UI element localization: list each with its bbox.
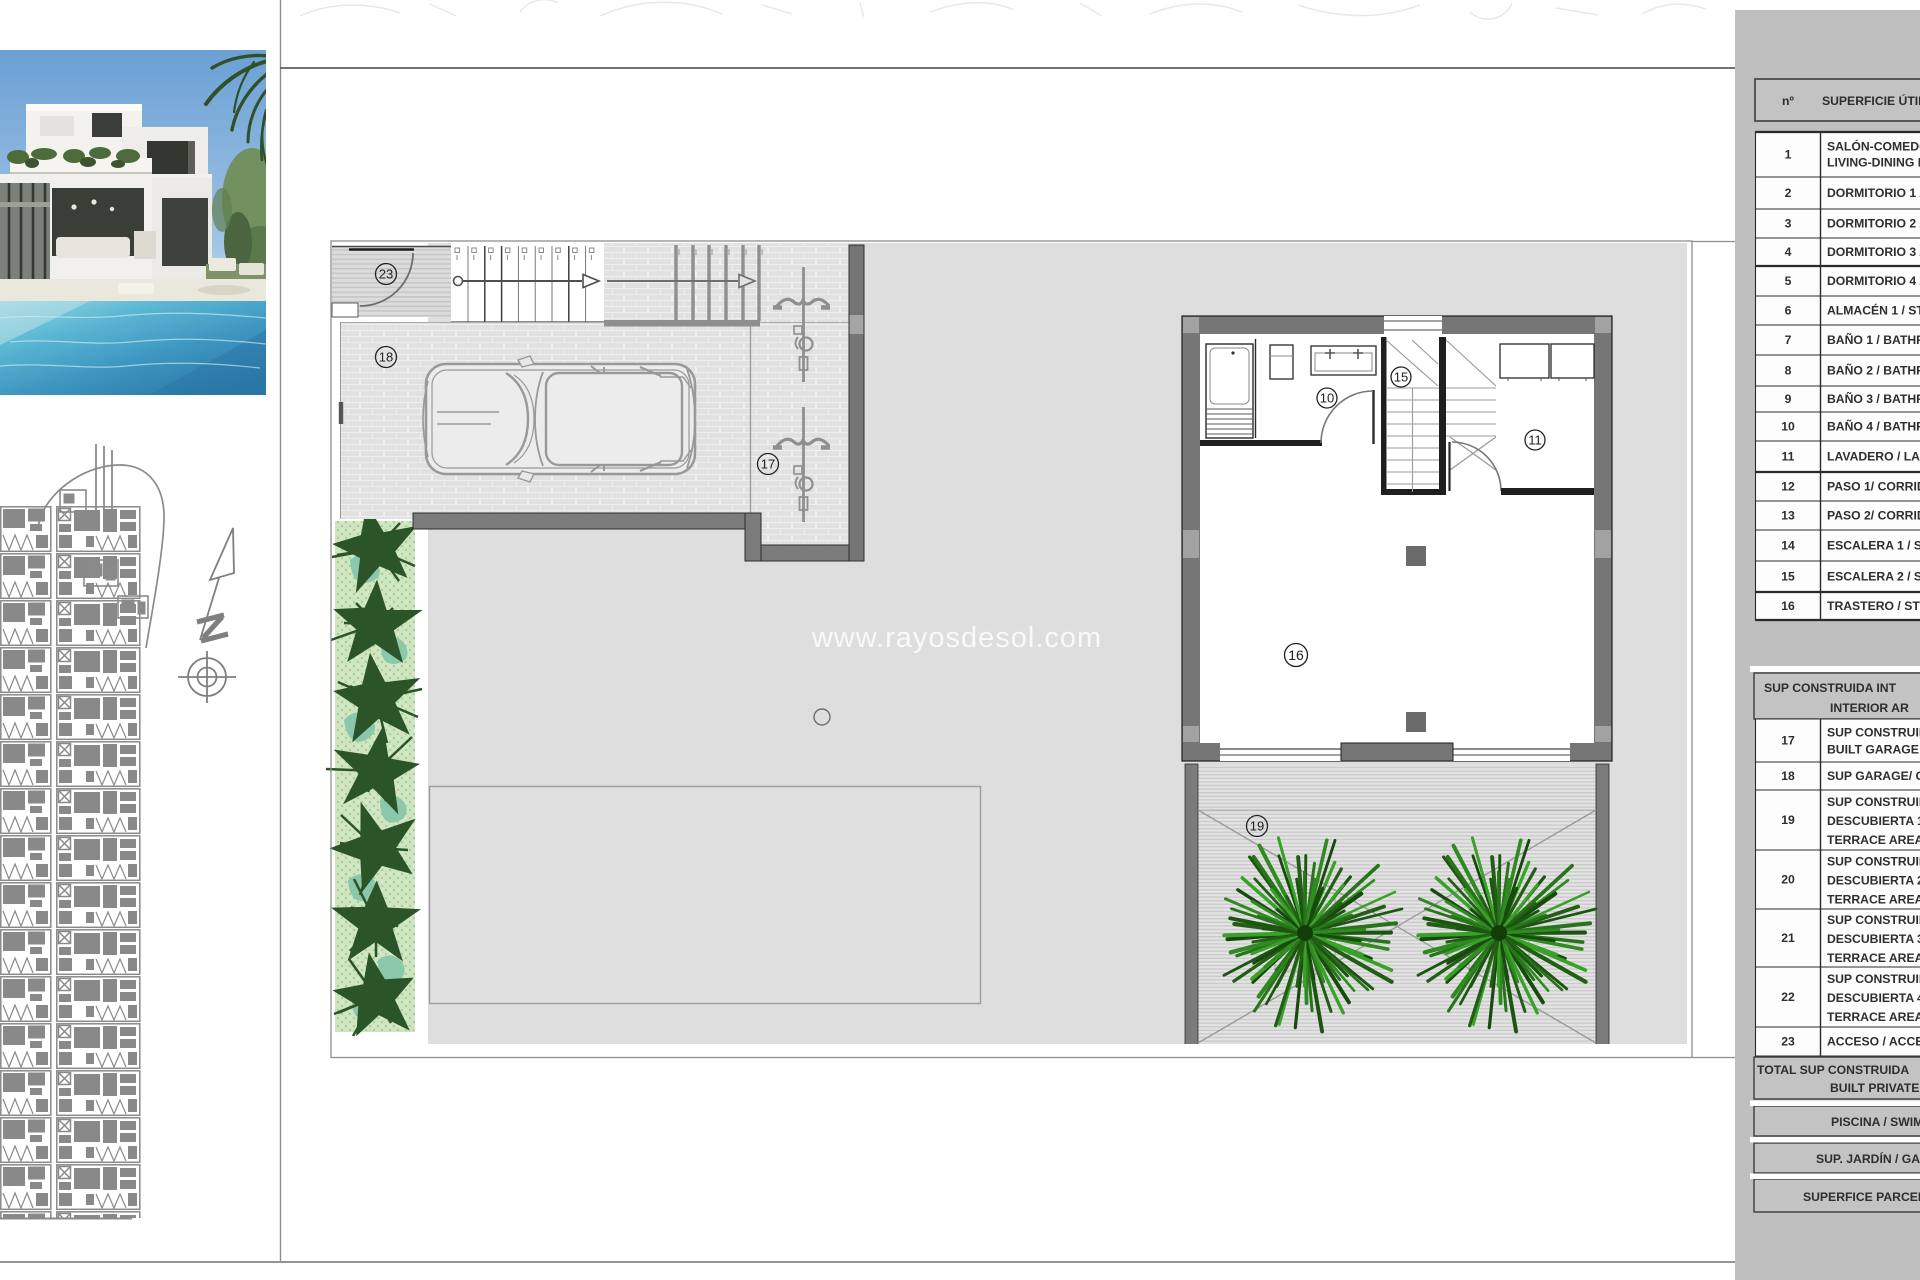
svg-text:9: 9 xyxy=(1785,392,1792,406)
svg-text:11: 11 xyxy=(1782,450,1795,464)
svg-text:5: 5 xyxy=(1785,274,1792,288)
svg-text:TERRACE AREA 1: TERRACE AREA 1 xyxy=(1827,833,1920,847)
svg-text:ESCALERA 1 / STAIR: ESCALERA 1 / STAIR xyxy=(1827,539,1920,553)
svg-text:TERRACE AREA 3: TERRACE AREA 3 xyxy=(1827,951,1920,965)
svg-text:www.rayosdesol.com: www.rayosdesol.com xyxy=(811,622,1102,654)
svg-text:15: 15 xyxy=(1394,370,1408,385)
svg-text:15: 15 xyxy=(1781,570,1795,584)
svg-text:SUP CONSTRUIDA: SUP CONSTRUIDA xyxy=(1827,726,1920,740)
svg-text:3: 3 xyxy=(1785,217,1792,231)
svg-text:TERRACE AREA 4: TERRACE AREA 4 xyxy=(1827,1010,1920,1024)
svg-text:SUPERFICE PARCELA: SUPERFICE PARCELA xyxy=(1803,1190,1920,1204)
svg-text:2: 2 xyxy=(1785,186,1792,200)
svg-text:ESCALERA 2 / STAIR: ESCALERA 2 / STAIR xyxy=(1827,570,1920,584)
svg-text:LIVING-DINING RO: LIVING-DINING RO xyxy=(1827,156,1920,170)
svg-text:SUP CONSTRUIDA: SUP CONSTRUIDA xyxy=(1827,913,1920,927)
svg-text:14: 14 xyxy=(1781,539,1795,553)
svg-text:16: 16 xyxy=(1288,647,1304,663)
svg-text:BAÑO 2 / BATHROO: BAÑO 2 / BATHROO xyxy=(1827,363,1920,378)
svg-text:SALÓN-COMEDOR /: SALÓN-COMEDOR / xyxy=(1827,139,1920,154)
svg-text:6: 6 xyxy=(1785,304,1792,318)
svg-text:BAÑO 3 / BATHROO: BAÑO 3 / BATHROO xyxy=(1827,391,1920,406)
svg-text:BAÑO 4 / BATHROO: BAÑO 4 / BATHROO xyxy=(1827,419,1920,434)
svg-text:19: 19 xyxy=(1250,819,1264,834)
svg-text:18: 18 xyxy=(1781,769,1795,783)
svg-text:23: 23 xyxy=(379,267,393,282)
svg-text:4: 4 xyxy=(1785,245,1792,259)
svg-text:BUILT GARAGE AR: BUILT GARAGE AR xyxy=(1827,743,1920,757)
svg-text:23: 23 xyxy=(1781,1035,1795,1049)
svg-text:DESCUBIERTA 1 /: DESCUBIERTA 1 / xyxy=(1827,814,1920,828)
svg-text:PISCINA / SWIMMI: PISCINA / SWIMMI xyxy=(1831,1115,1920,1129)
svg-text:10: 10 xyxy=(1781,420,1795,434)
svg-text:SUP. JARDÍN / GARD: SUP. JARDÍN / GARD xyxy=(1816,1151,1920,1166)
svg-text:DORMITORIO 1 / BE: DORMITORIO 1 / BE xyxy=(1827,186,1920,200)
svg-text:BAÑO 1 / BATHROO: BAÑO 1 / BATHROO xyxy=(1827,332,1920,347)
svg-text:INTERIOR AR: INTERIOR AR xyxy=(1830,701,1909,715)
svg-text:BUILT PRIVATE: BUILT PRIVATE xyxy=(1830,1081,1919,1095)
svg-text:SUP CONSTRUIDA: SUP CONSTRUIDA xyxy=(1827,795,1920,809)
svg-text:DORMITORIO 2 / BE: DORMITORIO 2 / BE xyxy=(1827,217,1920,231)
svg-text:TERRACE AREA 2: TERRACE AREA 2 xyxy=(1827,893,1920,907)
svg-text:16: 16 xyxy=(1781,599,1795,613)
svg-text:ACCESO / ACCESS: ACCESO / ACCESS xyxy=(1827,1035,1920,1049)
svg-text:8: 8 xyxy=(1785,364,1792,378)
svg-text:21: 21 xyxy=(1781,931,1795,945)
svg-text:22: 22 xyxy=(1781,990,1795,1004)
svg-text:SUP CONSTRUIDA INT: SUP CONSTRUIDA INT xyxy=(1764,681,1897,695)
svg-text:TOTAL SUP CONSTRUIDA: TOTAL SUP CONSTRUIDA xyxy=(1757,1063,1909,1077)
svg-text:SUP CONSTRUIDA: SUP CONSTRUIDA xyxy=(1827,972,1920,986)
svg-text:19: 19 xyxy=(1781,813,1795,827)
svg-text:DORMITORIO 4 / BE: DORMITORIO 4 / BE xyxy=(1827,274,1920,288)
svg-text:12: 12 xyxy=(1781,480,1795,494)
svg-text:20: 20 xyxy=(1781,873,1795,887)
svg-text:TRASTERO / STORA: TRASTERO / STORA xyxy=(1827,599,1920,613)
svg-text:SUPERFICIE ÚTIL / US: SUPERFICIE ÚTIL / US xyxy=(1822,93,1920,108)
svg-text:DESCUBIERTA 3 /: DESCUBIERTA 3 / xyxy=(1827,932,1920,946)
svg-text:DORMITORIO 3 / BE: DORMITORIO 3 / BE xyxy=(1827,245,1920,259)
svg-text:SUP GARAGE/ GAR: SUP GARAGE/ GAR xyxy=(1827,769,1920,783)
svg-text:PASO 1/ CORRIDOR: PASO 1/ CORRIDOR xyxy=(1827,480,1920,494)
svg-text:SUP CONSTRUIDA: SUP CONSTRUIDA xyxy=(1827,855,1920,869)
svg-text:7: 7 xyxy=(1785,333,1792,347)
svg-text:DESCUBIERTA 2 /: DESCUBIERTA 2 / xyxy=(1827,874,1920,888)
svg-text:10: 10 xyxy=(1320,391,1334,406)
svg-text:18: 18 xyxy=(379,350,393,365)
svg-text:1: 1 xyxy=(1785,148,1792,162)
svg-text:DESCUBIERTA 4 /: DESCUBIERTA 4 / xyxy=(1827,991,1920,1005)
svg-text:17: 17 xyxy=(761,457,775,472)
svg-text:ALMACÉN 1 / STOR: ALMACÉN 1 / STOR xyxy=(1827,303,1920,318)
svg-text:17: 17 xyxy=(1781,734,1795,748)
svg-text:PASO 2/ CORRIDOR: PASO 2/ CORRIDOR xyxy=(1827,509,1920,523)
svg-text:nº: nº xyxy=(1782,94,1794,108)
svg-text:LAVADERO / LAUND: LAVADERO / LAUND xyxy=(1827,450,1920,464)
svg-text:13: 13 xyxy=(1781,509,1795,523)
svg-text:11: 11 xyxy=(1528,433,1542,448)
